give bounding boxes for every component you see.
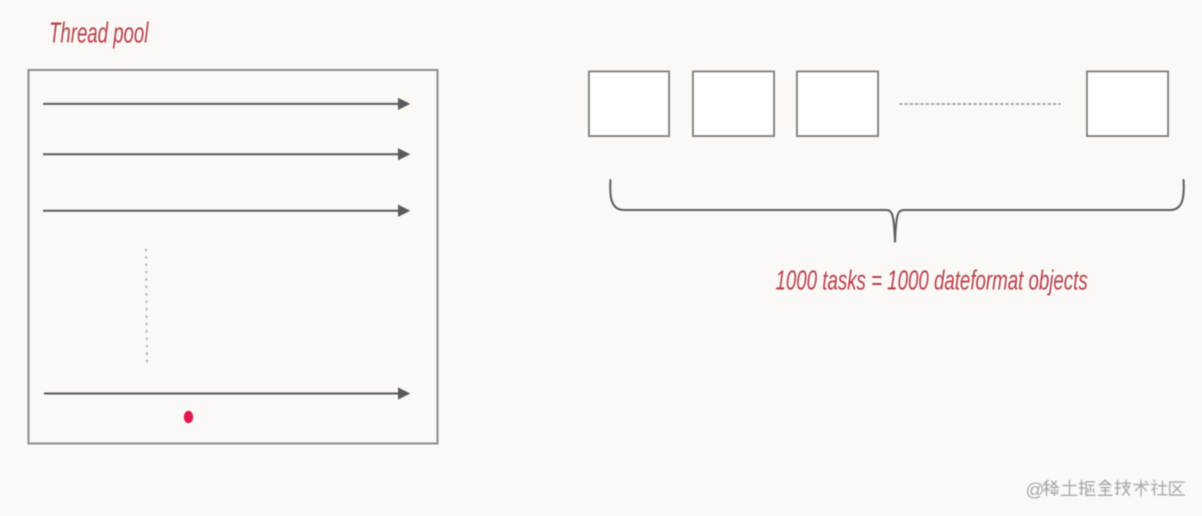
svg-text:Thread pool: Thread pool [49, 18, 149, 50]
svg-text:1000 tasks = 1000 dateformat o: 1000 tasks = 1000 dateformat objects [776, 265, 1088, 295]
svg-text:@: @ [1026, 479, 1045, 500]
